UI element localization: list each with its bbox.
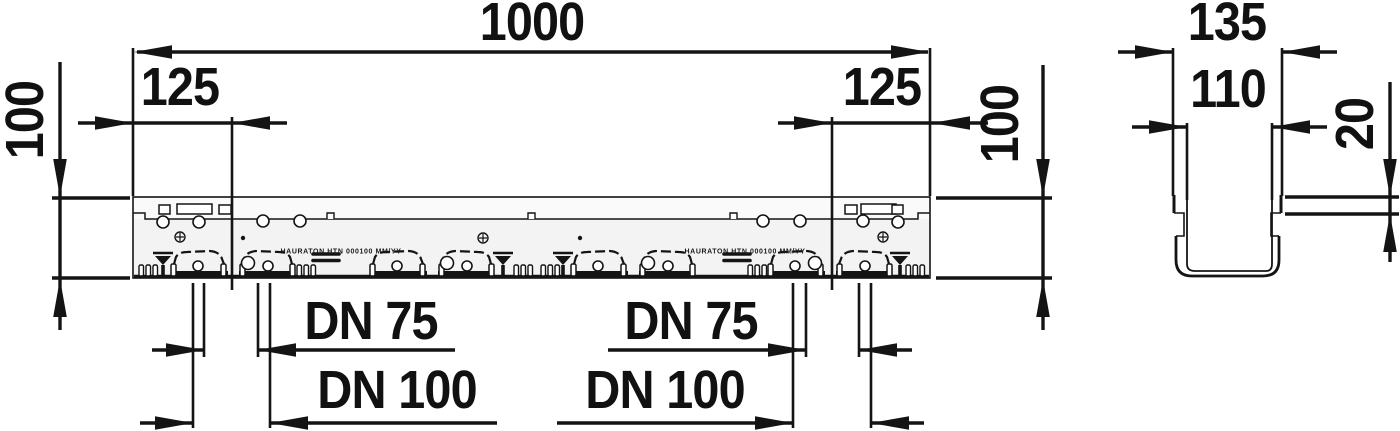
dim-length-label: 1000 — [480, 0, 585, 49]
dim-height-right-label: 100 — [973, 85, 1027, 163]
outlet-dn75-left-label: DN 75 — [304, 294, 437, 348]
dim-section-inner-width-label: 110 — [1190, 62, 1266, 116]
dim-section-lip-depth-label: 20 — [1328, 98, 1382, 150]
technical-drawing-channel: 1000 125 125 100 100 135 110 20 DN 75 DN… — [0, 0, 1400, 431]
dim-left-offset-label: 125 — [141, 60, 219, 114]
outlet-dn100-right-label: DN 100 — [585, 363, 744, 417]
dim-section-outer-width-label: 135 — [1188, 0, 1266, 49]
molded-marking-left: HAURATON HTN 000100 MM/YY — [281, 249, 402, 256]
section-view-profile — [1174, 195, 1281, 276]
dim-right-offset-label: 125 — [843, 60, 921, 114]
molded-marking-right: HAURATON HTN 000100 MM/YY — [685, 249, 806, 256]
outlet-dn75-right-label: DN 75 — [624, 294, 757, 348]
dim-height-left-label: 100 — [0, 81, 52, 159]
plan-view-body — [133, 197, 930, 278]
outlet-dn100-left-label: DN 100 — [317, 363, 476, 417]
